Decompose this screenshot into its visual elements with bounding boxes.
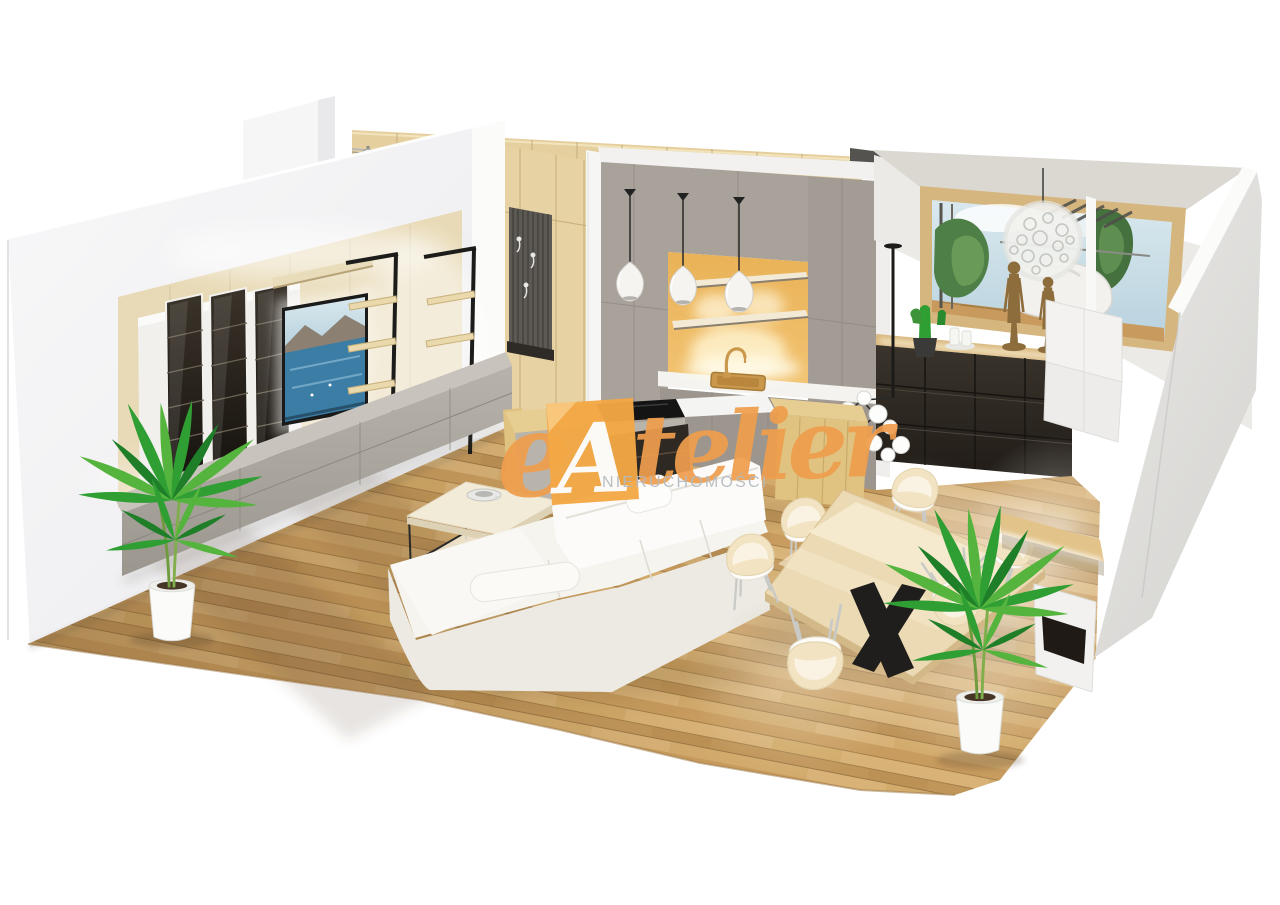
render-canvas: e A telier NIERUCHOMOŚCI [0,0,1280,905]
monogram-letter: A [547,401,633,517]
gold-sink [711,372,766,391]
watermark-subtitle: NIERUCHOMOŚCI [602,472,768,491]
tv-screen [282,293,368,426]
brand-monogram: A [546,398,639,517]
coat-slat-panel [509,207,552,352]
desk-upper-cabinets [1044,300,1122,442]
apartment-3d-render: e A telier NIERUCHOMOŚCI [0,0,1280,905]
